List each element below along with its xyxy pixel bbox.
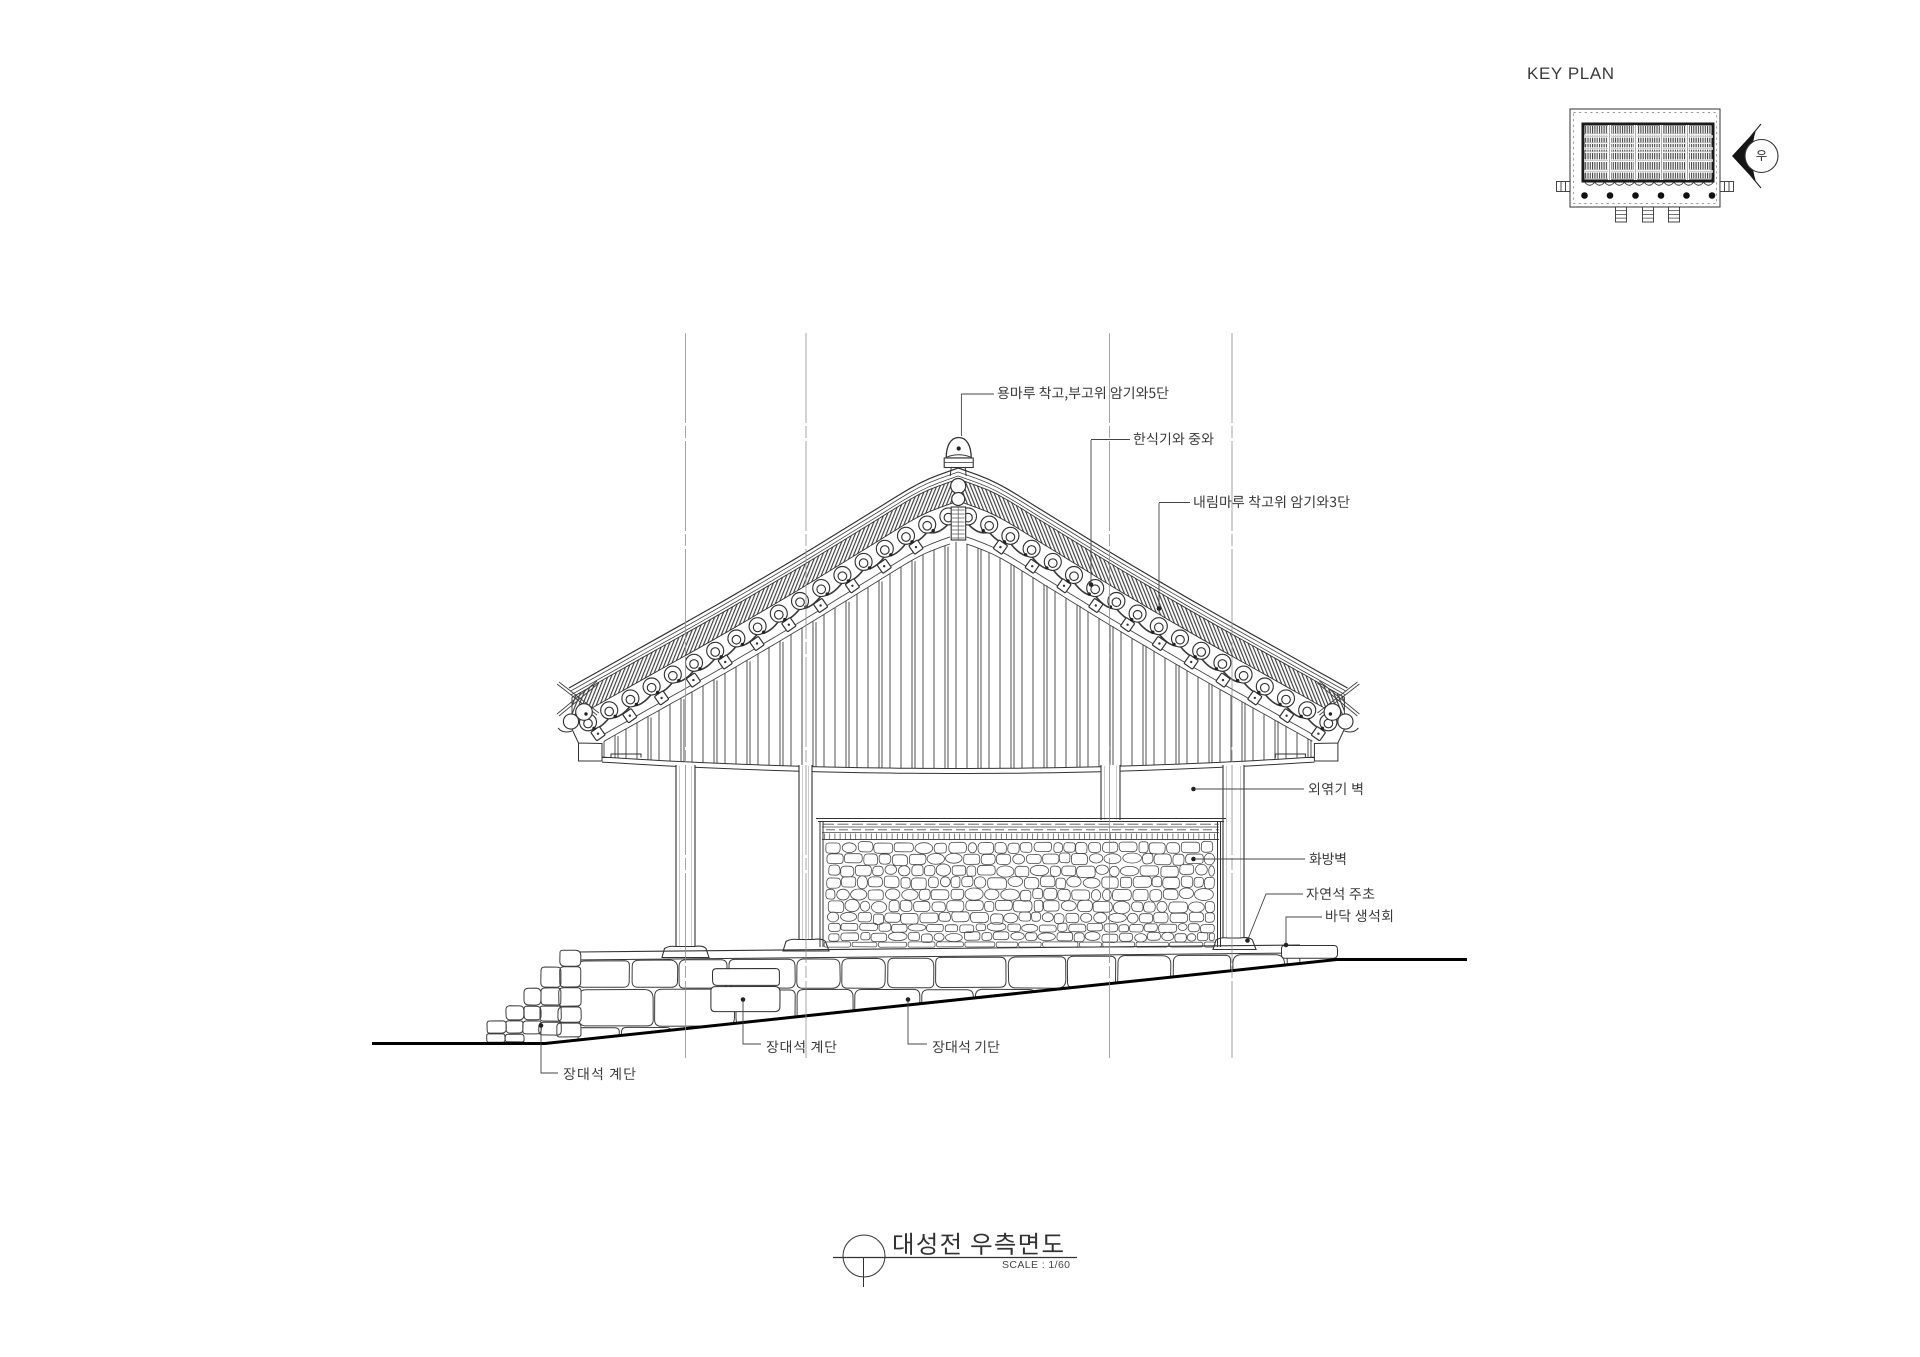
svg-text:KEY PLAN: KEY PLAN bbox=[1527, 64, 1615, 83]
svg-text:SCALE : 1/60: SCALE : 1/60 bbox=[1002, 1259, 1070, 1271]
